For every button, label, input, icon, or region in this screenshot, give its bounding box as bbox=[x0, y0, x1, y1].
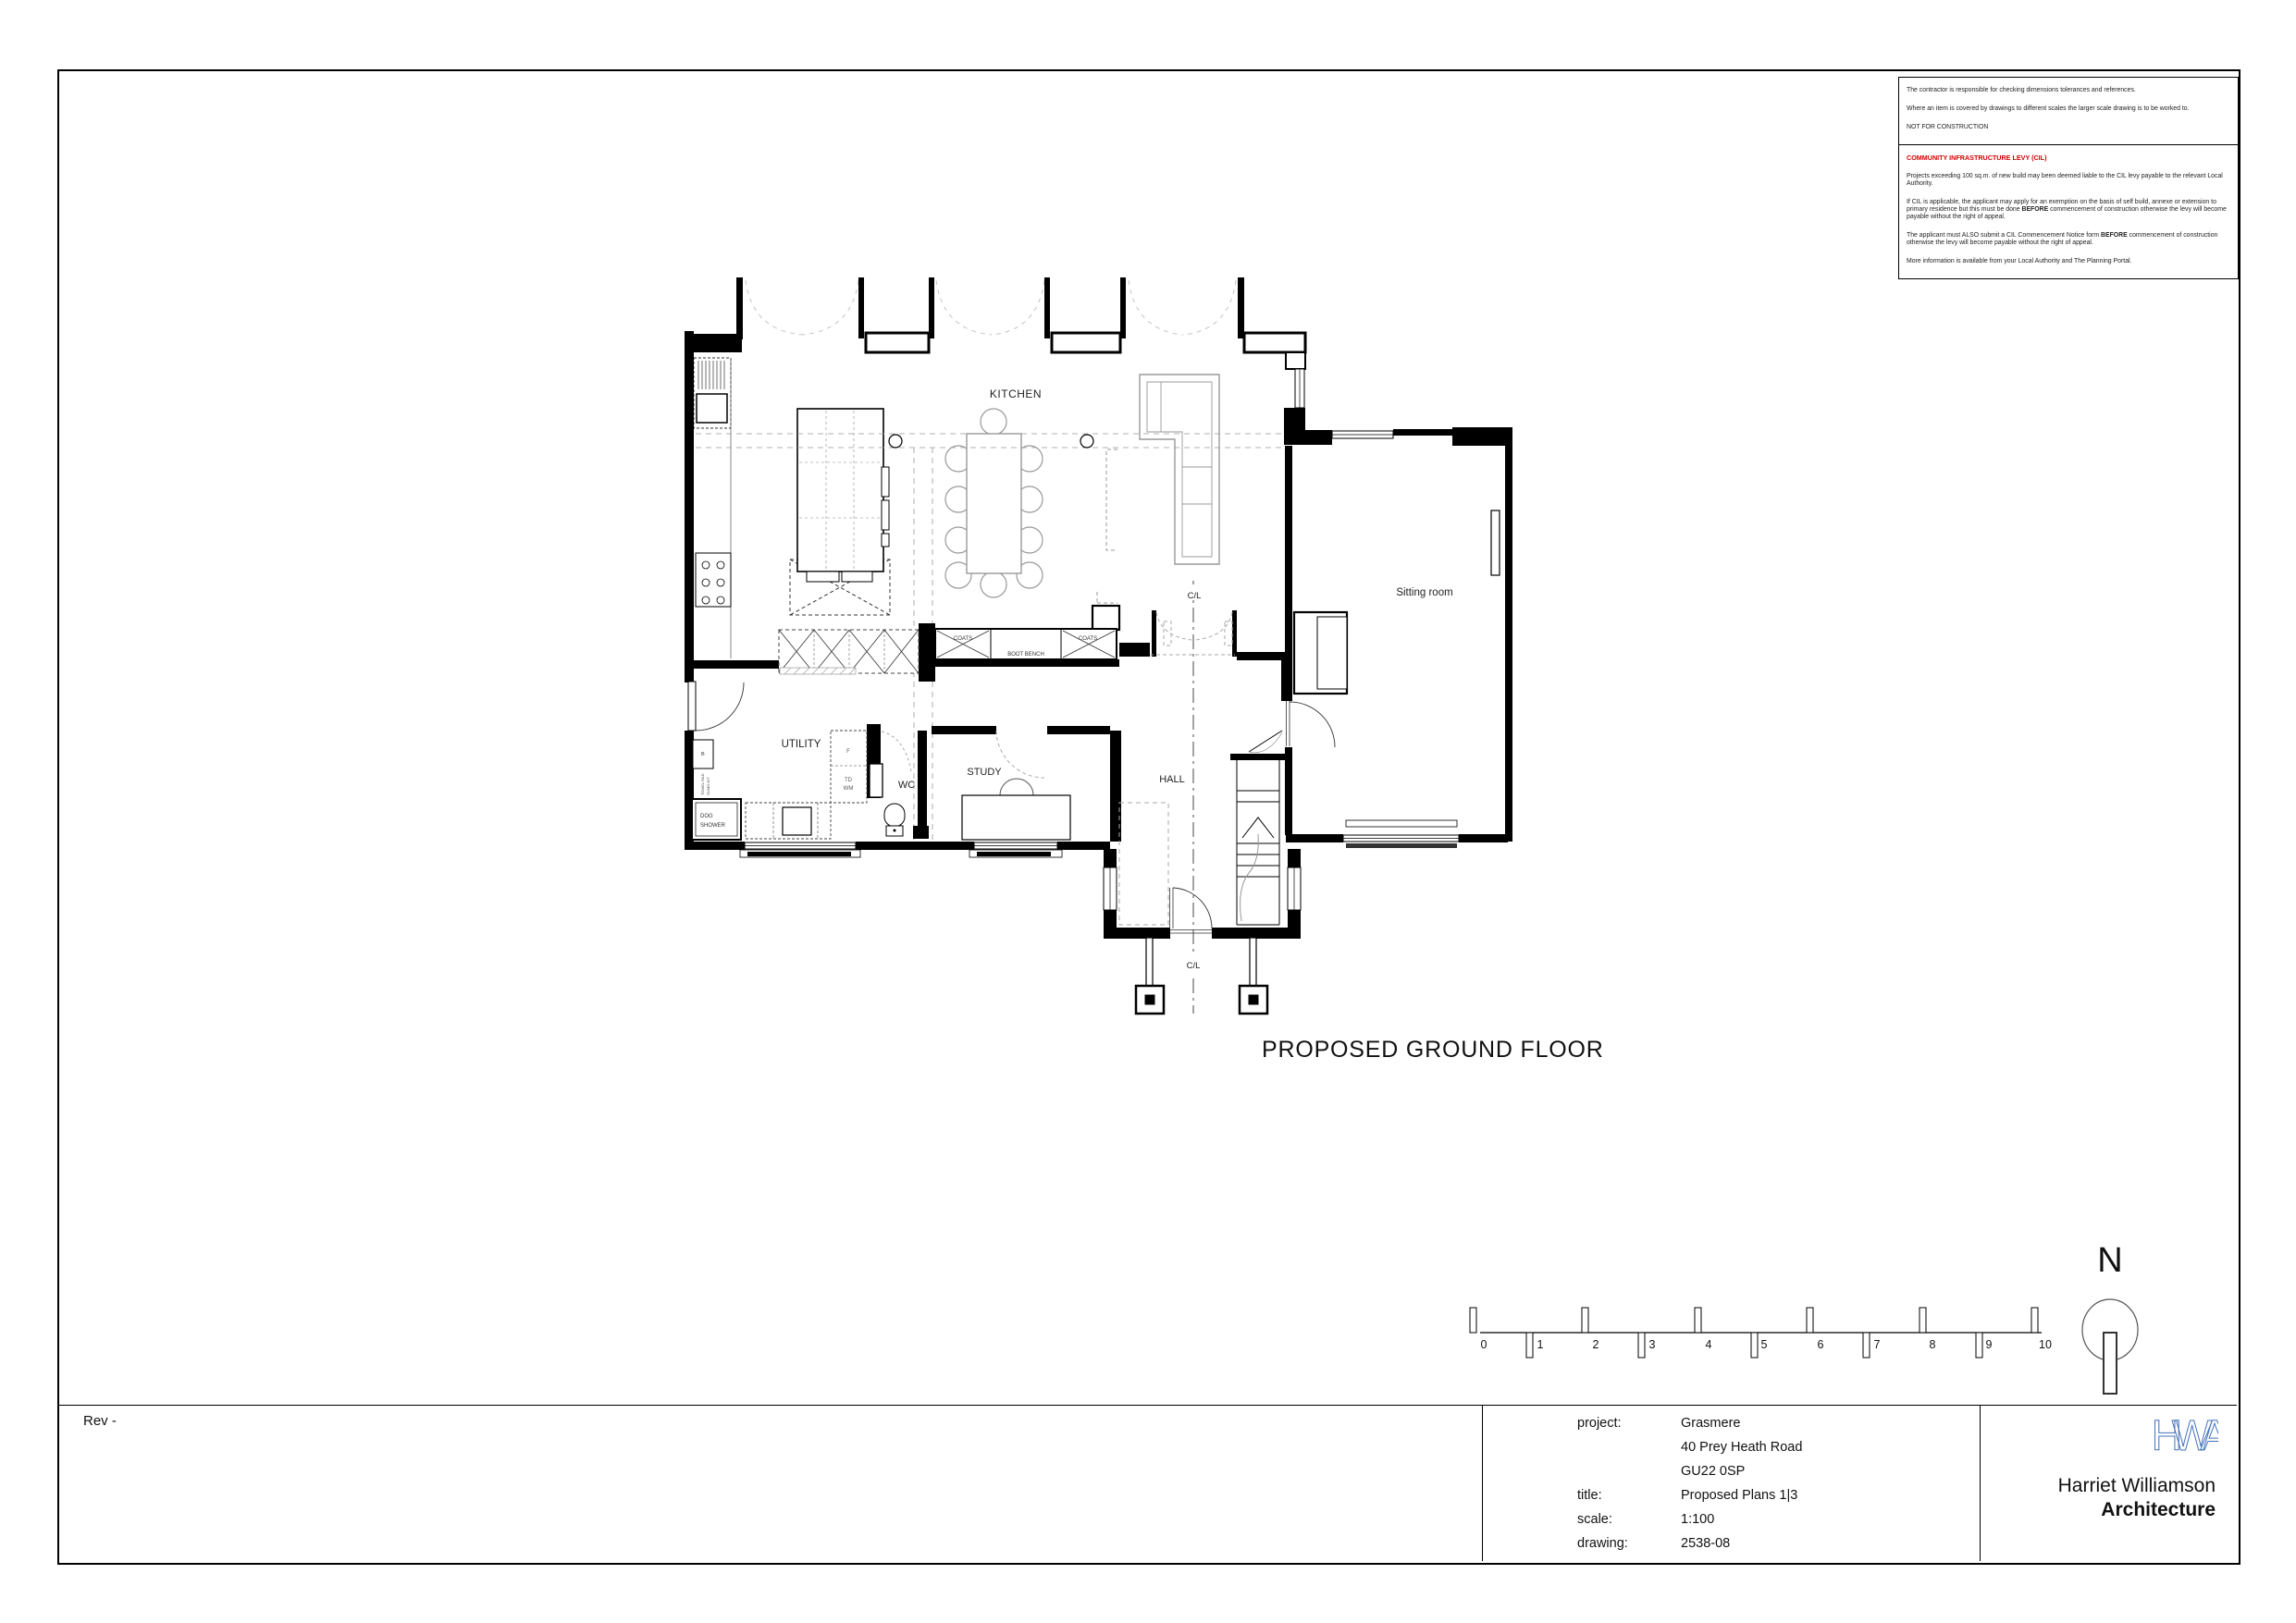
cil-paragraph: More information is available from your … bbox=[1907, 258, 2230, 265]
label-study: STUDY bbox=[967, 767, 1002, 778]
label-dog-1: DOG bbox=[700, 814, 713, 819]
project-label: project: bbox=[1577, 1411, 1681, 1435]
note-line: The contractor is responsible for checki… bbox=[1907, 87, 2230, 94]
north-arrow: N bbox=[2082, 1241, 2138, 1394]
scale-label: scale: bbox=[1577, 1507, 1681, 1531]
svg-text:1: 1 bbox=[1537, 1338, 1544, 1351]
title-block: project:Grasmere 40 Prey Heath Road GU22… bbox=[1577, 1411, 1802, 1555]
svg-text:6: 6 bbox=[1818, 1338, 1824, 1351]
south-wall bbox=[685, 842, 1110, 857]
north-letter: N bbox=[2097, 1241, 2122, 1280]
label-towel-rad: TOWEL RAD bbox=[700, 773, 705, 795]
utility-sink bbox=[783, 807, 811, 835]
sitting-room-door bbox=[1287, 701, 1336, 747]
hob bbox=[696, 553, 731, 607]
media-unit-dashed bbox=[1097, 449, 1117, 603]
drawing-sheet: { "colors": { "accent_red": "#d40000", "… bbox=[0, 0, 2296, 1623]
revision-label: Rev - bbox=[83, 1413, 117, 1429]
label-wc: WC bbox=[898, 780, 915, 791]
porch-posts bbox=[1136, 938, 1267, 1014]
svg-text:7: 7 bbox=[1874, 1338, 1881, 1351]
bifold-leaf bbox=[866, 333, 929, 352]
svg-text:0: 0 bbox=[1481, 1338, 1487, 1351]
firm-block: Harriet Williamson Architecture bbox=[1989, 1474, 2216, 1522]
label-fridge: F bbox=[846, 749, 850, 755]
front-door bbox=[1170, 888, 1213, 933]
label-utility: UTILITY bbox=[782, 739, 821, 750]
firm-discipline: Architecture bbox=[1989, 1498, 2216, 1522]
title-value: Proposed Plans 1|3 bbox=[1681, 1488, 1797, 1503]
label-hall: HALL bbox=[1159, 774, 1185, 785]
dog-shower bbox=[692, 799, 741, 840]
tall-cabinet bbox=[831, 731, 867, 803]
setting-out-point bbox=[1080, 435, 1093, 448]
cil-paragraph: If CIL is applicable, the applicant may … bbox=[1907, 199, 2230, 221]
svg-text:9: 9 bbox=[1986, 1338, 1993, 1351]
svg-text:HWA: HWA bbox=[2152, 1411, 2218, 1459]
range-cooker bbox=[694, 358, 731, 428]
project-address-2: GU22 0SP bbox=[1681, 1464, 1745, 1479]
kitchen-island bbox=[797, 409, 889, 582]
project-address-1: 40 Prey Heath Road bbox=[1681, 1440, 1802, 1455]
scale-bar: 0 1 2 3 4 5 6 7 8 9 10 bbox=[1470, 1308, 2052, 1358]
toilet bbox=[884, 804, 905, 836]
title-band-rule bbox=[57, 1405, 2237, 1406]
desk bbox=[962, 795, 1070, 840]
hall-stairs bbox=[1119, 731, 1286, 925]
label-td: TD bbox=[845, 778, 853, 783]
sofa bbox=[1140, 375, 1219, 564]
label-cl-upper: C/L bbox=[1188, 591, 1202, 601]
study-fixtures bbox=[962, 779, 1070, 840]
title-label: title: bbox=[1577, 1483, 1681, 1507]
wall-leaf bbox=[1244, 333, 1305, 352]
label-b: B bbox=[701, 752, 705, 757]
hwa-logo: HWA bbox=[2148, 1411, 2218, 1463]
general-notes: The contractor is responsible for checki… bbox=[1899, 78, 2238, 145]
double-door-dashed bbox=[1150, 612, 1235, 655]
cil-notes: COMMUNITY INFRASTRUCTURE LEVY (CIL) Proj… bbox=[1899, 145, 2238, 278]
drawing-label: drawing: bbox=[1577, 1531, 1681, 1555]
svg-text:2: 2 bbox=[1593, 1338, 1599, 1351]
label-coats-1: COATS bbox=[954, 636, 972, 642]
svg-text:10: 10 bbox=[2039, 1338, 2052, 1351]
radiator bbox=[1491, 510, 1500, 575]
project-value: Grasmere bbox=[1681, 1416, 1740, 1431]
cil-paragraph: Projects exceeding 100 sq.m. of new buil… bbox=[1907, 173, 2230, 188]
scale-value: 1:100 bbox=[1681, 1512, 1714, 1527]
svg-text:8: 8 bbox=[1930, 1338, 1936, 1351]
porch bbox=[1104, 849, 1301, 1014]
note-line: Where an item is covered by drawings to … bbox=[1907, 105, 2230, 113]
label-kitchen: KITCHEN bbox=[990, 387, 1042, 400]
drawing-value: 2538-08 bbox=[1681, 1536, 1730, 1551]
svg-text:3: 3 bbox=[1649, 1338, 1656, 1351]
cil-heading: COMMUNITY INFRASTRUCTURE LEVY (CIL) bbox=[1907, 154, 2230, 162]
label-sitting-room: Sitting room bbox=[1396, 587, 1452, 598]
dining-set bbox=[945, 409, 1043, 597]
svg-text:4: 4 bbox=[1706, 1338, 1712, 1351]
label-dog-2: SHOWER bbox=[700, 823, 726, 829]
hall-closet-dashed bbox=[1119, 803, 1168, 925]
label-boot-bench: BOOT BENCH bbox=[1007, 652, 1044, 658]
floor-plan-title: PROPOSED GROUND FLOOR bbox=[1262, 1037, 1604, 1064]
band-divider bbox=[1482, 1405, 1483, 1561]
band-divider bbox=[1980, 1405, 1981, 1561]
bifold-leaf bbox=[1052, 333, 1120, 352]
label-towel-rad-2: SLIMO KIT bbox=[706, 777, 710, 795]
svg-text:5: 5 bbox=[1761, 1338, 1768, 1351]
label-wm: WM bbox=[844, 786, 854, 792]
wc-door bbox=[870, 764, 883, 797]
notes-box: The contractor is responsible for checki… bbox=[1898, 77, 2239, 279]
cil-paragraph: The applicant must ALSO submit a CIL Com… bbox=[1907, 232, 2230, 247]
label-coats-2: COATS bbox=[1079, 636, 1097, 642]
setting-out-point bbox=[889, 435, 902, 448]
sitting-room-walls bbox=[1284, 427, 1512, 848]
label-cl-lower: C/L bbox=[1187, 961, 1201, 971]
firm-name: Harriet Williamson bbox=[1989, 1474, 2216, 1498]
storage-unit bbox=[779, 630, 919, 674]
note-line: NOT FOR CONSTRUCTION bbox=[1907, 124, 2230, 131]
